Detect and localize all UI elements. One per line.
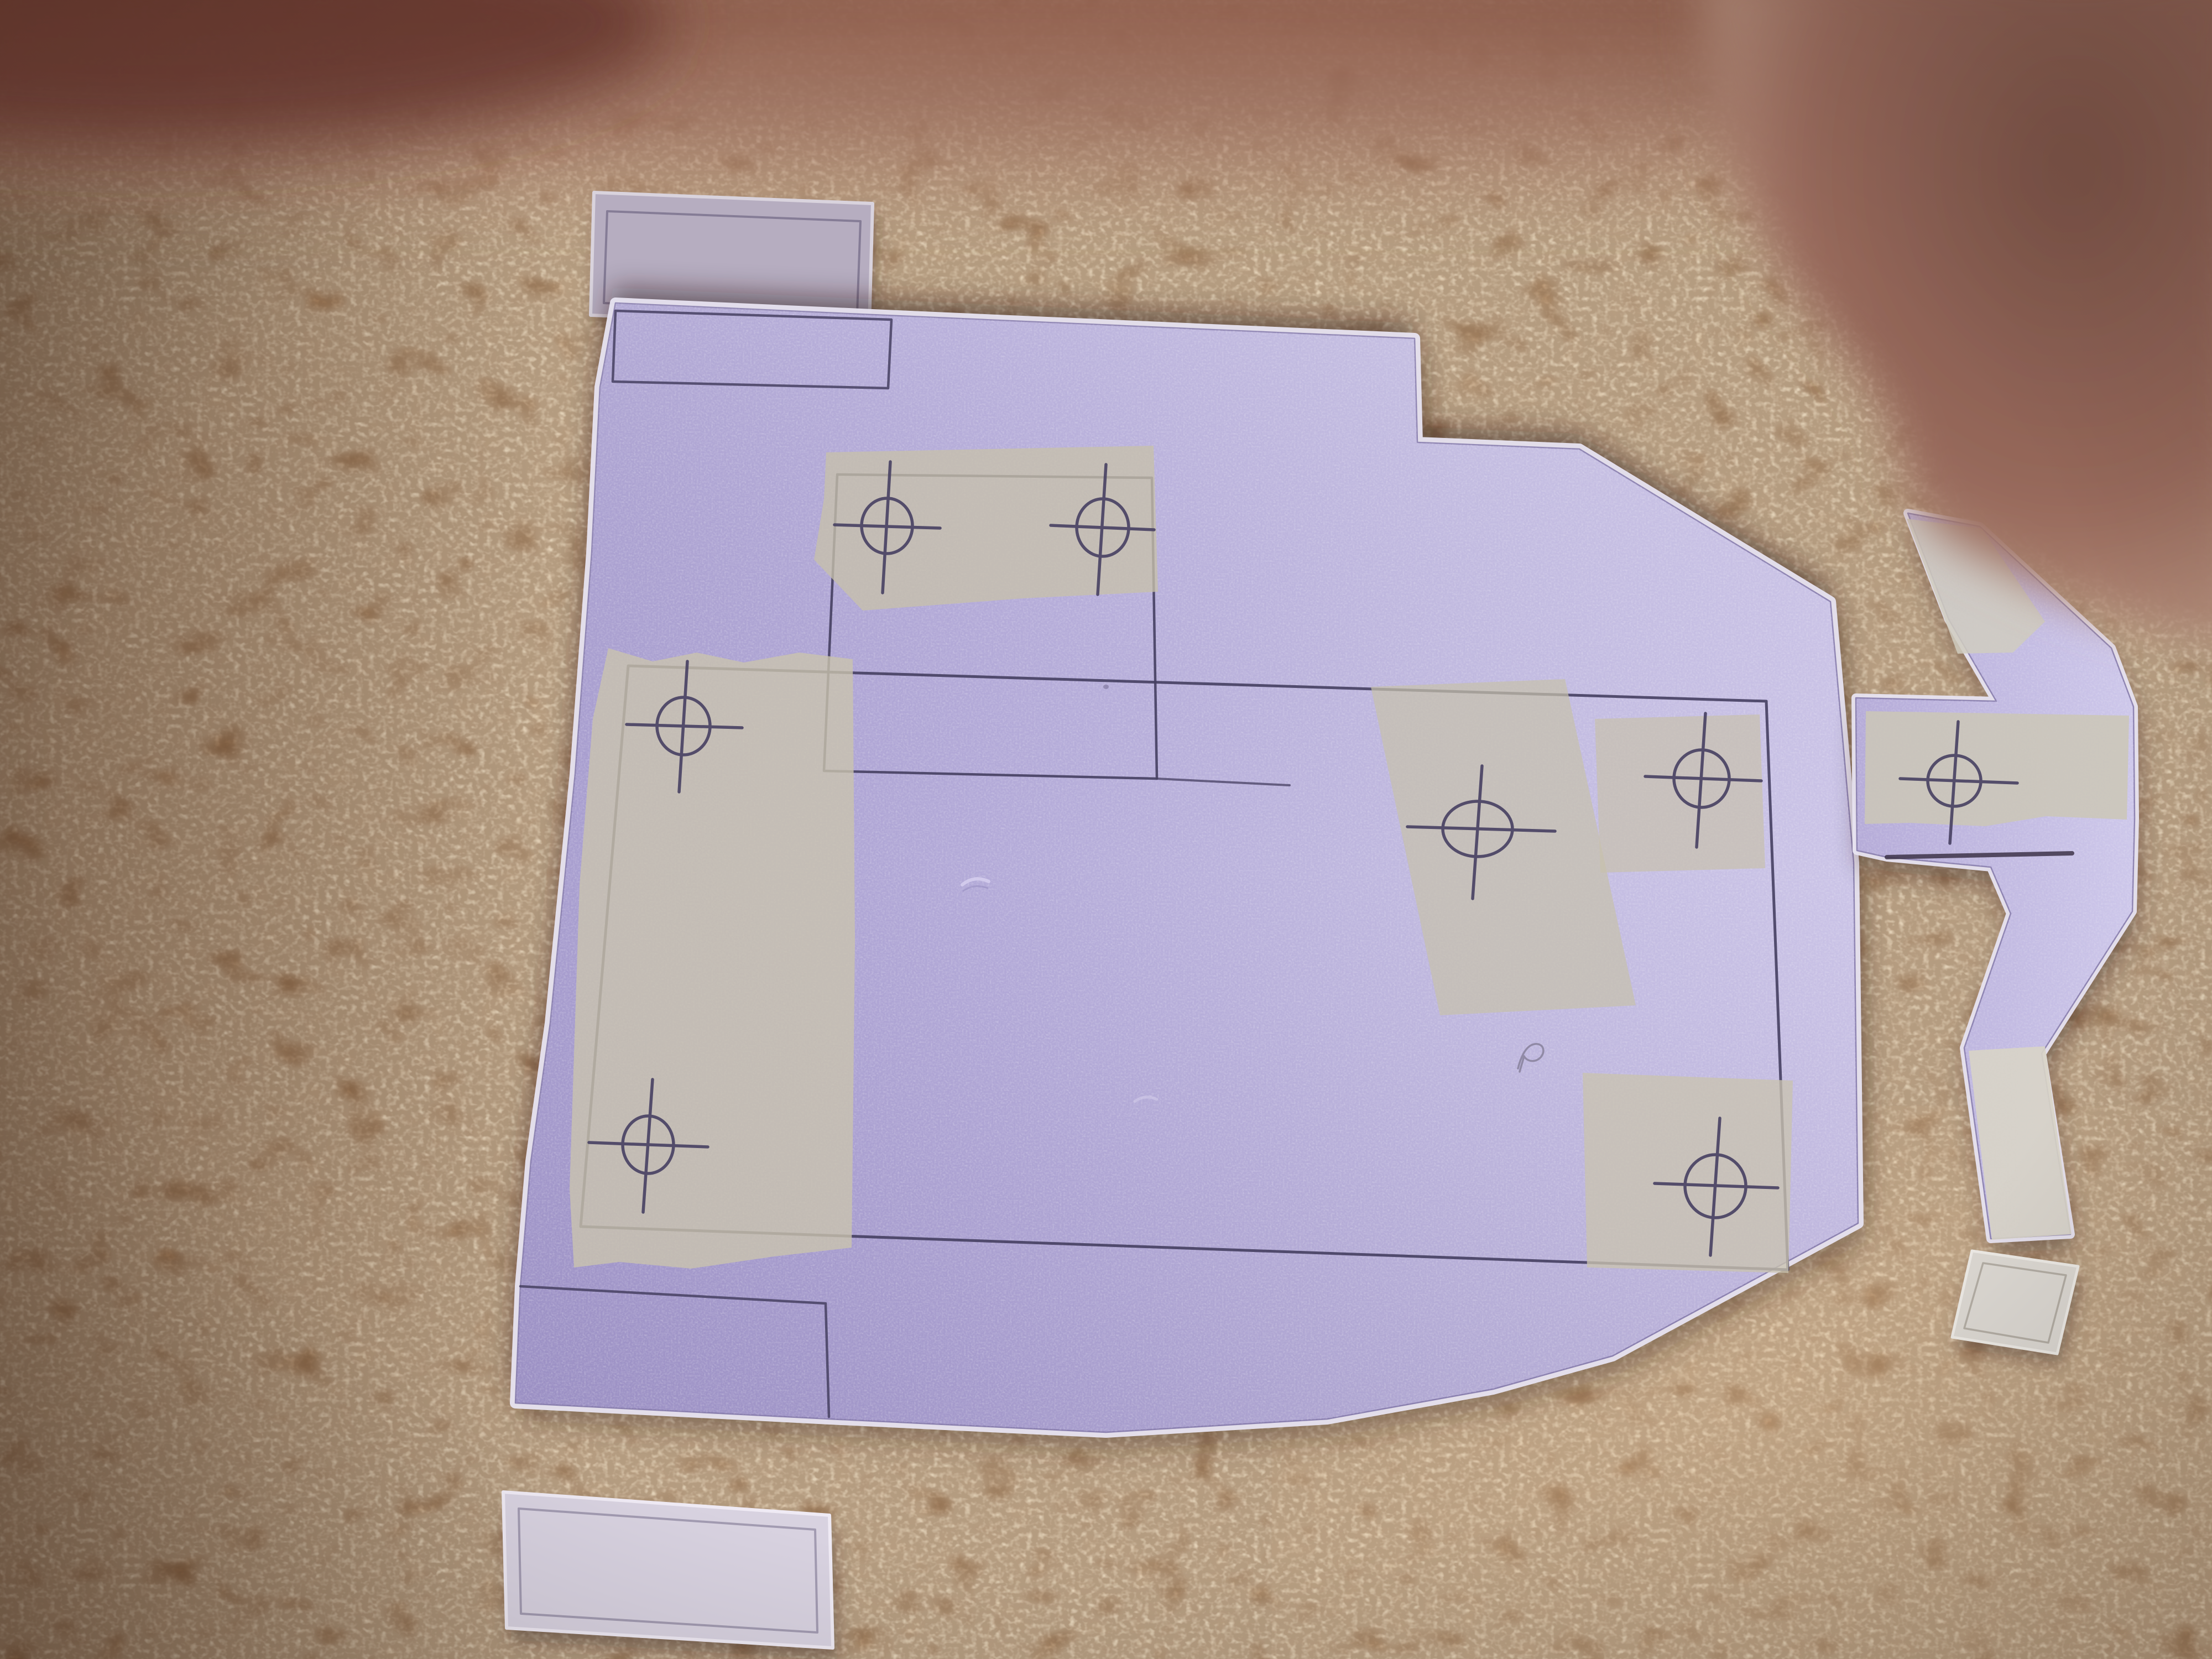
photo-canvas bbox=[0, 0, 2212, 1659]
corkboard-photo bbox=[0, 0, 2212, 1659]
photo-page: { "meta": { "description": "Photograph o… bbox=[0, 0, 2212, 1659]
photo-vignette bbox=[0, 0, 2212, 1659]
scene-layers bbox=[0, 0, 2212, 1659]
